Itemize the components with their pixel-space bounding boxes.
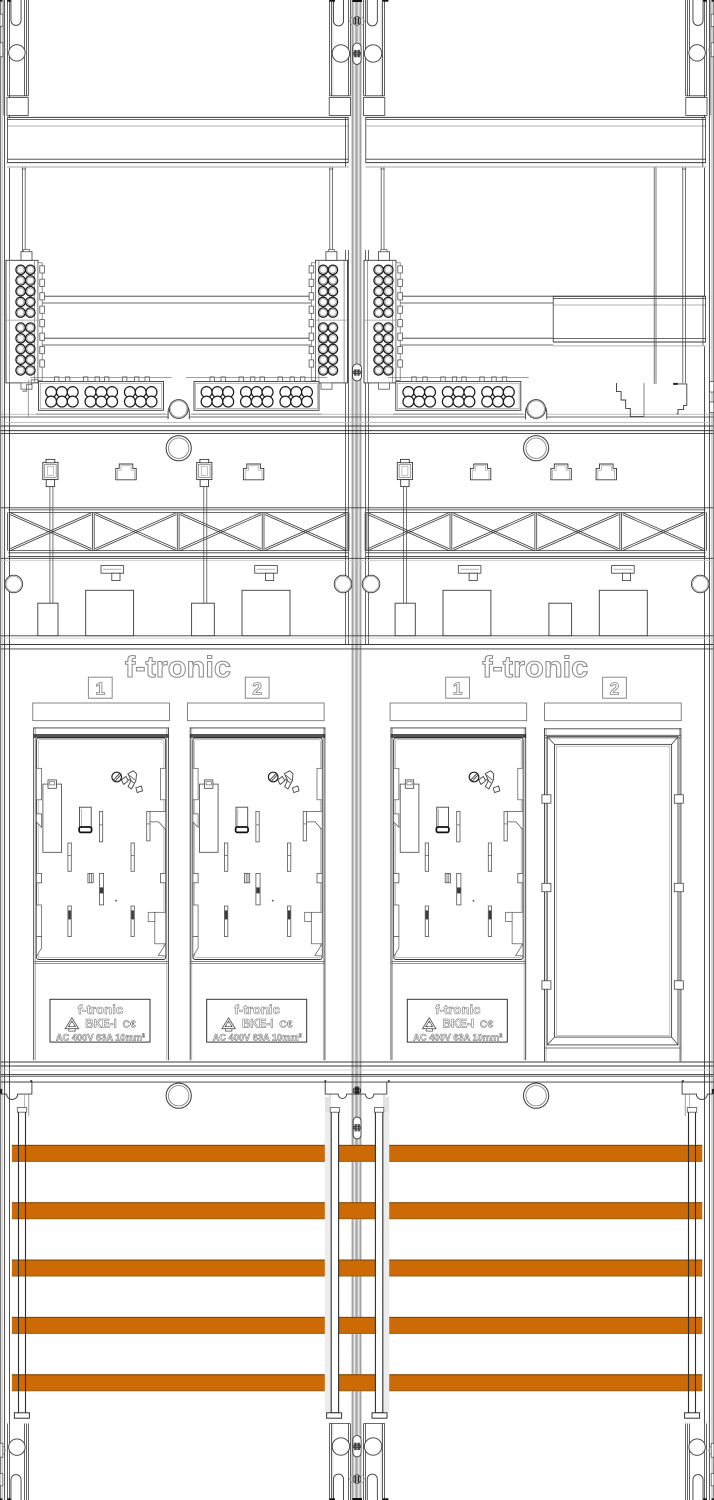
svg-text:C€: C€ (279, 1019, 293, 1030)
svg-text:2: 2 (610, 678, 620, 698)
svg-text:f-tronic: f-tronic (78, 1003, 124, 1017)
svg-text:AC 400V 63A 10mm²: AC 400V 63A 10mm² (213, 1033, 302, 1043)
svg-text:2: 2 (252, 678, 262, 698)
svg-text:C€: C€ (480, 1019, 494, 1030)
svg-text:f-tronic: f-tronic (482, 651, 588, 684)
svg-text:BKE-I: BKE-I (242, 1019, 274, 1031)
svg-text:AC 400V 63A 10mm²: AC 400V 63A 10mm² (413, 1033, 502, 1043)
svg-text:C€: C€ (123, 1019, 137, 1030)
svg-text:1: 1 (95, 678, 105, 698)
svg-text:f-tronic: f-tronic (125, 651, 231, 684)
svg-text:BKE-I: BKE-I (85, 1019, 117, 1031)
svg-text:f-tronic: f-tronic (435, 1003, 481, 1017)
svg-text:BKE-I: BKE-I (443, 1019, 475, 1031)
svg-text:AC 400V 63A 10mm²: AC 400V 63A 10mm² (56, 1033, 145, 1043)
svg-text:1: 1 (453, 678, 463, 698)
svg-text:f-tronic: f-tronic (234, 1003, 280, 1017)
